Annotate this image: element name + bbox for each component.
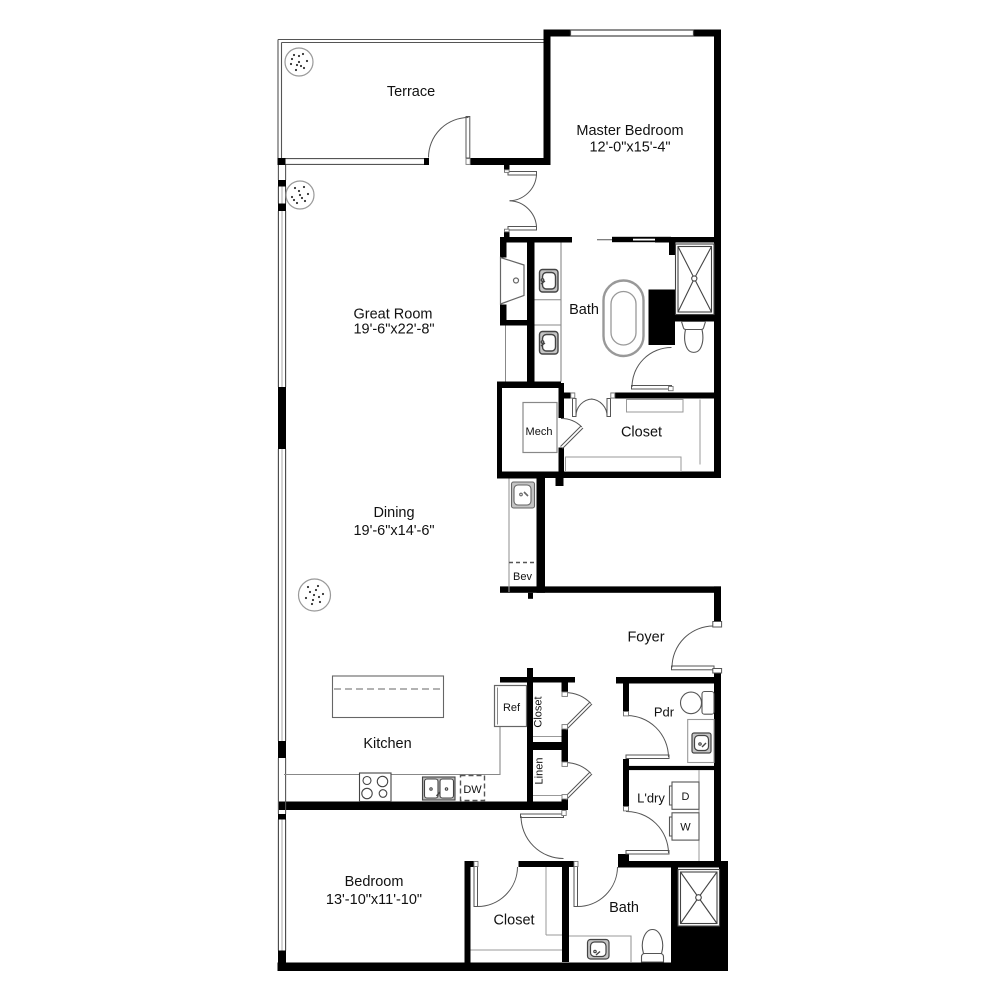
svg-text:Closet: Closet [533, 696, 545, 727]
svg-text:Pdr: Pdr [654, 705, 675, 720]
svg-text:Dining: Dining [373, 505, 414, 521]
svg-text:DW: DW [463, 784, 482, 796]
svg-text:Bath: Bath [609, 900, 639, 916]
svg-text:19'-6"x14'-6": 19'-6"x14'-6" [353, 523, 434, 539]
svg-text:Ref: Ref [503, 702, 521, 714]
svg-text:19'-6"x22'-8": 19'-6"x22'-8" [353, 322, 434, 338]
svg-text:Bath: Bath [569, 302, 599, 318]
svg-text:Bev: Bev [513, 571, 532, 583]
svg-text:W: W [680, 822, 691, 834]
svg-text:Closet: Closet [493, 913, 534, 929]
svg-text:Bedroom: Bedroom [345, 874, 404, 890]
svg-text:13'-10"x11'-10": 13'-10"x11'-10" [326, 892, 422, 908]
svg-text:Closet: Closet [621, 425, 662, 441]
svg-text:Linen: Linen [534, 758, 546, 785]
svg-text:Great Room: Great Room [354, 307, 433, 323]
svg-text:Terrace: Terrace [387, 84, 435, 100]
svg-text:12'-0"x15'-4": 12'-0"x15'-4" [589, 140, 670, 156]
svg-text:Foyer: Foyer [627, 630, 664, 646]
svg-text:Kitchen: Kitchen [363, 736, 411, 752]
svg-text:Mech: Mech [526, 426, 553, 438]
svg-text:L'dry: L'dry [637, 791, 665, 806]
svg-text:Master Bedroom: Master Bedroom [576, 123, 683, 139]
svg-text:D: D [682, 791, 690, 803]
